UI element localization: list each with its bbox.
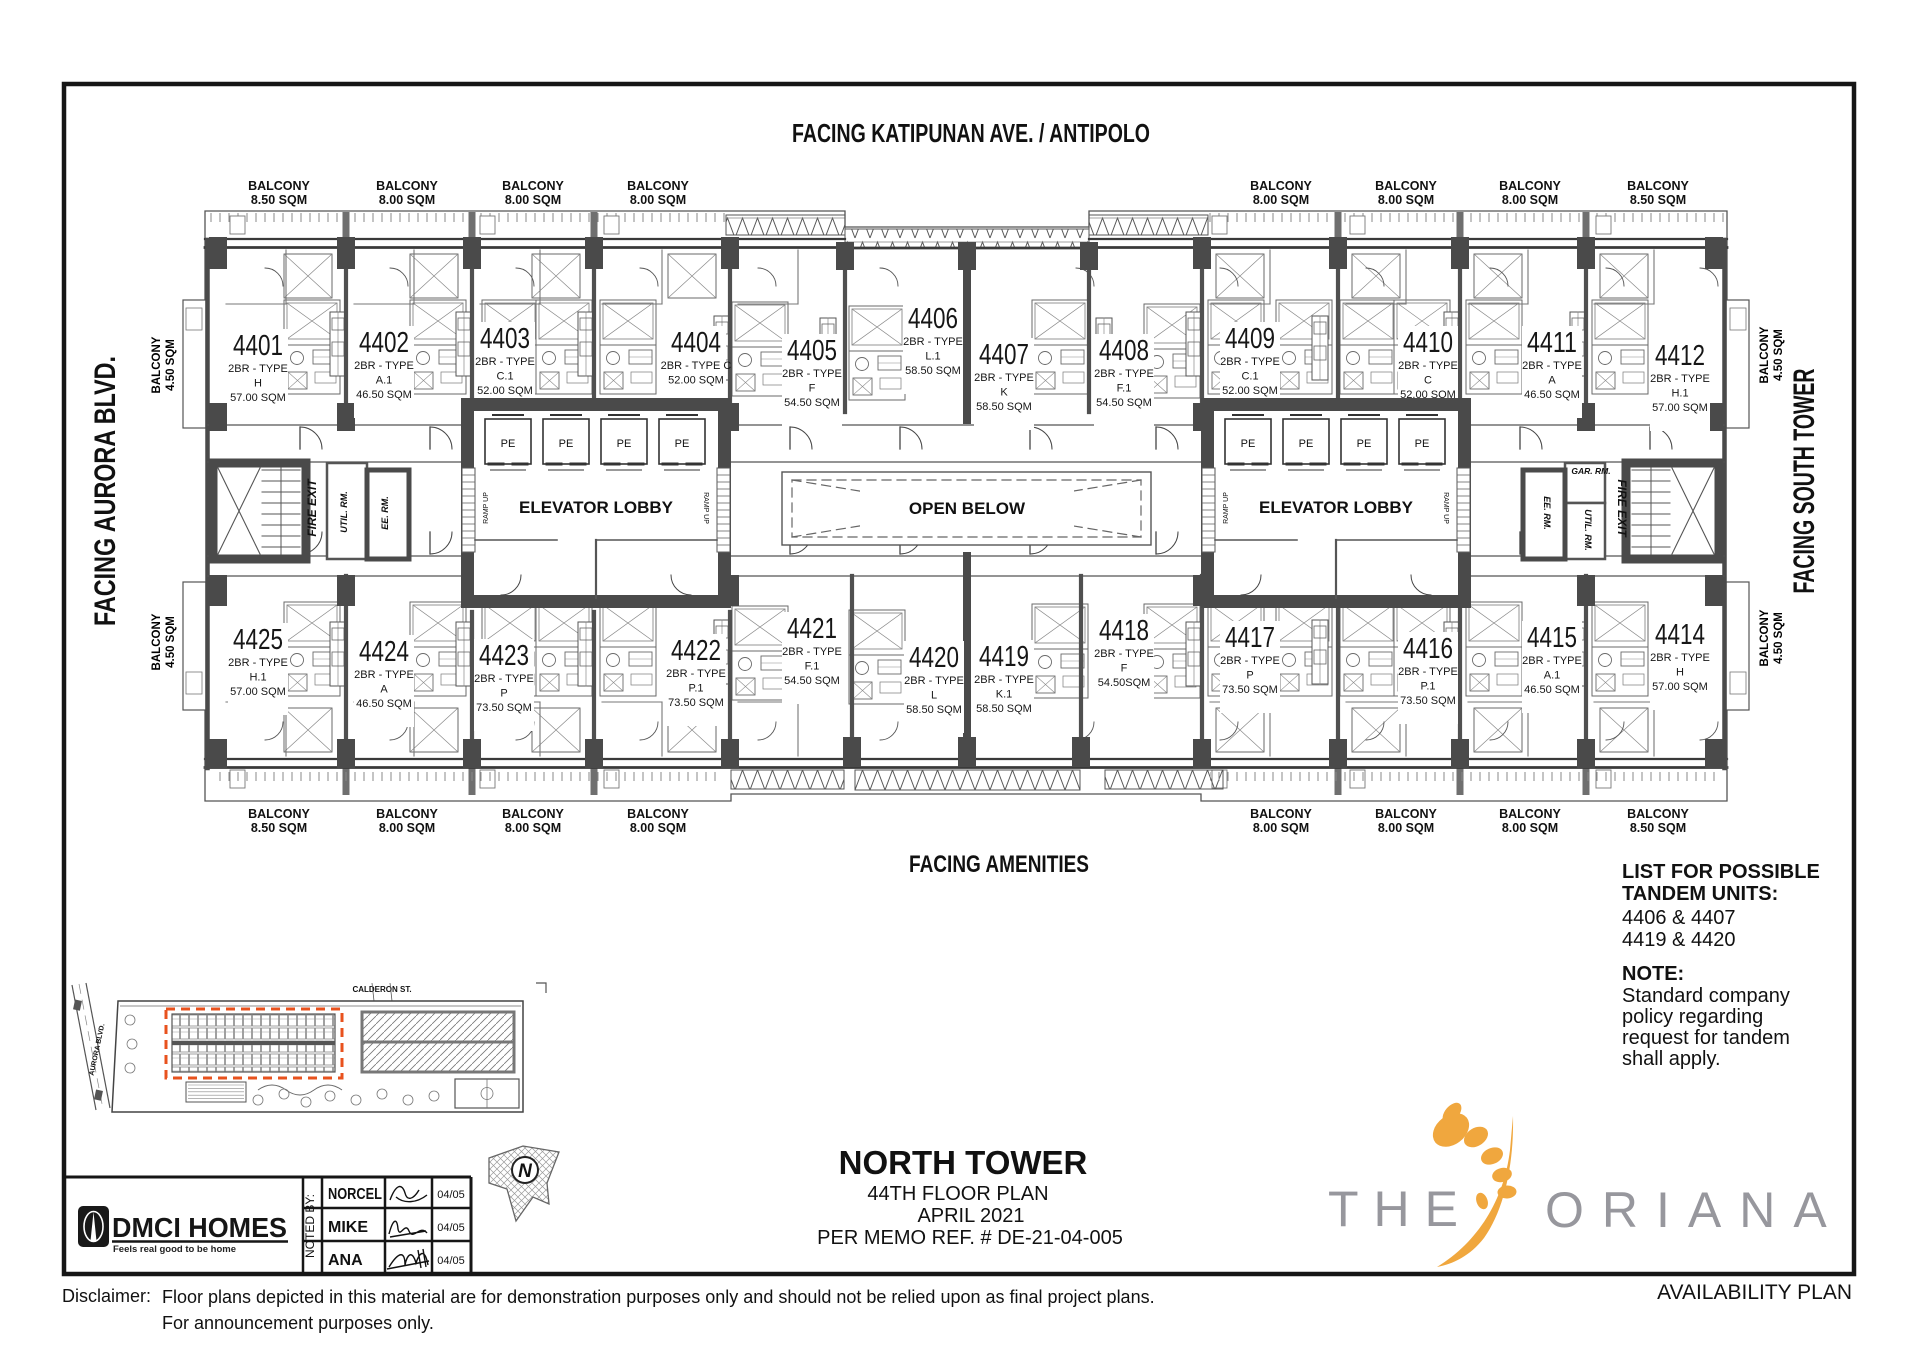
svg-text:P.1: P.1 — [688, 683, 703, 695]
svg-text:57.00 SQM: 57.00 SQM — [230, 392, 286, 404]
svg-text:8.00 SQM: 8.00 SQM — [1502, 193, 1558, 207]
svg-text:BALCONY: BALCONY — [1250, 179, 1312, 193]
svg-text:4422: 4422 — [671, 635, 721, 667]
svg-text:2BR - TYPE: 2BR - TYPE — [474, 673, 534, 685]
svg-text:K: K — [1000, 387, 1008, 399]
svg-text:FIRE EXIT: FIRE EXIT — [1615, 479, 1629, 538]
svg-text:46.50 SQM: 46.50 SQM — [1524, 389, 1580, 401]
svg-text:4410: 4410 — [1403, 327, 1453, 359]
svg-text:54.50 SQM: 54.50 SQM — [1096, 397, 1152, 409]
svg-text:H.1: H.1 — [1671, 388, 1688, 400]
svg-text:BALCONY: BALCONY — [1375, 807, 1437, 821]
svg-text:FACING SOUTH TOWER: FACING SOUTH TOWER — [1788, 368, 1821, 593]
svg-text:2BR - TYPE: 2BR - TYPE — [1522, 655, 1582, 667]
svg-text:NORCEL: NORCEL — [328, 1186, 382, 1203]
svg-text:BALCONY: BALCONY — [1759, 326, 1771, 383]
svg-text:8.00 SQM: 8.00 SQM — [630, 193, 686, 207]
svg-text:73.50 SQM: 73.50 SQM — [476, 702, 532, 714]
svg-text:EE. RM.: EE. RM. — [1542, 496, 1552, 530]
svg-text:RAMP UP: RAMP UP — [1223, 492, 1230, 524]
svg-text:shall apply.: shall apply. — [1622, 1048, 1721, 1070]
svg-text:BALCONY: BALCONY — [1250, 807, 1312, 821]
svg-text:8.00 SQM: 8.00 SQM — [1502, 821, 1558, 835]
svg-text:PE: PE — [559, 438, 574, 450]
svg-text:BALCONY: BALCONY — [502, 179, 564, 193]
svg-text:PE: PE — [617, 438, 632, 450]
svg-text:04/05: 04/05 — [437, 1255, 465, 1267]
svg-text:EE. RM.: EE. RM. — [380, 496, 390, 530]
svg-text:NOTED BY:: NOTED BY: — [303, 1194, 317, 1258]
svg-text:4424: 4424 — [359, 636, 409, 668]
svg-text:AVAILABILITY PLAN: AVAILABILITY PLAN — [1657, 1281, 1852, 1304]
svg-text:44TH FLOOR PLAN: 44TH FLOOR PLAN — [867, 1183, 1048, 1205]
svg-text:2BR - TYPE: 2BR - TYPE — [475, 356, 535, 368]
svg-text:PE: PE — [1299, 438, 1314, 450]
svg-text:4423: 4423 — [479, 640, 529, 672]
svg-text:73.50 SQM: 73.50 SQM — [1400, 695, 1456, 707]
svg-text:P: P — [1246, 670, 1253, 682]
svg-text:N: N — [518, 1161, 533, 1182]
svg-text:L: L — [931, 690, 937, 702]
svg-text:TANDEM UNITS:: TANDEM UNITS: — [1622, 883, 1778, 905]
svg-text:4419: 4419 — [979, 641, 1029, 673]
svg-text:4.50 SQM: 4.50 SQM — [1773, 612, 1785, 664]
svg-text:46.50 SQM: 46.50 SQM — [356, 389, 412, 401]
svg-text:NORTH TOWER: NORTH TOWER — [839, 1144, 1088, 1181]
svg-text:BALCONY: BALCONY — [1627, 807, 1689, 821]
svg-text:LIST FOR POSSIBLE: LIST FOR POSSIBLE — [1622, 861, 1820, 883]
svg-text:54.50 SQM: 54.50 SQM — [784, 397, 840, 409]
svg-text:BALCONY: BALCONY — [248, 807, 310, 821]
svg-text:4419 & 4420: 4419 & 4420 — [1622, 929, 1735, 951]
svg-text:THE: THE — [1328, 1181, 1473, 1237]
svg-text:policy regarding: policy regarding — [1622, 1006, 1763, 1028]
svg-text:C.1: C.1 — [1241, 371, 1258, 383]
svg-text:F.1: F.1 — [805, 661, 820, 673]
svg-text:4406 & 4407: 4406 & 4407 — [1622, 907, 1735, 929]
svg-text:L.1: L.1 — [925, 351, 940, 363]
svg-text:2BR - TYPE: 2BR - TYPE — [1220, 655, 1280, 667]
svg-text:BALCONY: BALCONY — [1499, 179, 1561, 193]
svg-text:57.00 SQM: 57.00 SQM — [1652, 402, 1708, 414]
svg-text:04/05: 04/05 — [437, 1222, 465, 1234]
svg-text:A.1: A.1 — [376, 375, 393, 387]
svg-text:F.1: F.1 — [1117, 383, 1132, 395]
svg-text:4417: 4417 — [1225, 622, 1275, 654]
svg-text:C: C — [1424, 375, 1432, 387]
svg-text:PER MEMO REF. # DE-21-04-005: PER MEMO REF. # DE-21-04-005 — [817, 1227, 1123, 1249]
svg-text:PE: PE — [501, 438, 516, 450]
svg-text:GAR. RM.: GAR. RM. — [1571, 466, 1610, 476]
svg-text:F: F — [809, 383, 816, 395]
svg-text:8.00 SQM: 8.00 SQM — [1253, 193, 1309, 207]
svg-text:4402: 4402 — [359, 327, 409, 359]
svg-text:8.50 SQM: 8.50 SQM — [251, 193, 307, 207]
svg-text:2BR - TYPE: 2BR - TYPE — [782, 368, 842, 380]
svg-text:2BR - TYPE C: 2BR - TYPE C — [661, 360, 732, 372]
svg-text:2BR - TYPE: 2BR - TYPE — [354, 360, 414, 372]
svg-text:4425: 4425 — [233, 624, 283, 656]
svg-text:8.00 SQM: 8.00 SQM — [379, 193, 435, 207]
svg-text:PE: PE — [1357, 438, 1372, 450]
svg-text:FACING AURORA BLVD.: FACING AURORA BLVD. — [89, 356, 122, 626]
svg-text:8.00 SQM: 8.00 SQM — [1378, 821, 1434, 835]
svg-text:RAMP UP: RAMP UP — [483, 492, 490, 524]
svg-text:Feels real good to be home: Feels real good to be home — [113, 1244, 236, 1255]
svg-text:BALCONY: BALCONY — [376, 807, 438, 821]
svg-text:4414: 4414 — [1655, 619, 1705, 651]
svg-text:Standard company: Standard company — [1622, 985, 1790, 1007]
svg-text:8.00 SQM: 8.00 SQM — [1378, 193, 1434, 207]
svg-text:ELEVATOR LOBBY: ELEVATOR LOBBY — [519, 498, 674, 517]
svg-text:OPEN BELOW: OPEN BELOW — [909, 499, 1026, 518]
svg-text:73.50 SQM: 73.50 SQM — [668, 697, 724, 709]
svg-text:P.1: P.1 — [1420, 681, 1435, 693]
svg-text:ELEVATOR LOBBY: ELEVATOR LOBBY — [1259, 498, 1414, 517]
svg-text:54.50 SQM: 54.50 SQM — [784, 675, 840, 687]
svg-text:4.50 SQM: 4.50 SQM — [165, 616, 177, 668]
svg-text:NOTE:: NOTE: — [1622, 963, 1684, 985]
svg-text:54.50SQM: 54.50SQM — [1098, 677, 1151, 689]
svg-text:73.50 SQM: 73.50 SQM — [1222, 684, 1278, 696]
svg-text:4408: 4408 — [1099, 335, 1149, 367]
svg-text:52.00 SQM: 52.00 SQM — [477, 385, 533, 397]
svg-text:4416: 4416 — [1403, 633, 1453, 665]
svg-text:46.50 SQM: 46.50 SQM — [356, 698, 412, 710]
svg-text:PE: PE — [1415, 438, 1430, 450]
svg-text:8.00 SQM: 8.00 SQM — [505, 193, 561, 207]
svg-text:2BR - TYPE: 2BR - TYPE — [1094, 368, 1154, 380]
svg-text:H: H — [1676, 667, 1684, 679]
svg-text:H.1: H.1 — [249, 672, 266, 684]
svg-text:2BR - TYPE: 2BR - TYPE — [1094, 648, 1154, 660]
svg-text:RAMP UP: RAMP UP — [1442, 492, 1449, 524]
svg-text:FACING KATIPUNAN AVE. / ANTIPO: FACING KATIPUNAN AVE. / ANTIPOLO — [792, 118, 1150, 148]
svg-text:A: A — [380, 684, 388, 696]
svg-text:4415: 4415 — [1527, 622, 1577, 654]
svg-text:F: F — [1121, 663, 1128, 675]
svg-text:FACING AMENITIES: FACING AMENITIES — [909, 851, 1089, 878]
svg-text:58.50 SQM: 58.50 SQM — [906, 704, 962, 716]
svg-text:8.00 SQM: 8.00 SQM — [630, 821, 686, 835]
svg-text:request for tandem: request for tandem — [1622, 1027, 1790, 1049]
svg-text:4403: 4403 — [480, 323, 530, 355]
svg-text:K.1: K.1 — [996, 689, 1013, 701]
svg-text:UTIL. RM.: UTIL. RM. — [1583, 509, 1593, 551]
svg-text:For announcement purposes only: For announcement purposes only. — [162, 1313, 434, 1333]
svg-text:4.50 SQM: 4.50 SQM — [1773, 329, 1785, 381]
svg-text:BALCONY: BALCONY — [502, 807, 564, 821]
svg-text:58.50 SQM: 58.50 SQM — [976, 401, 1032, 413]
svg-text:PE: PE — [675, 438, 690, 450]
svg-text:ORIANA: ORIANA — [1545, 1182, 1845, 1238]
svg-text:BALCONY: BALCONY — [248, 179, 310, 193]
svg-text:2BR - TYPE: 2BR - TYPE — [1220, 356, 1280, 368]
svg-text:2BR - TYPE: 2BR - TYPE — [1398, 360, 1458, 372]
svg-text:2BR - TYPE: 2BR - TYPE — [782, 646, 842, 658]
svg-text:A.1: A.1 — [1544, 670, 1561, 682]
svg-text:4406: 4406 — [908, 303, 958, 335]
svg-text:2BR - TYPE: 2BR - TYPE — [903, 336, 963, 348]
svg-text:04/05: 04/05 — [437, 1189, 465, 1201]
svg-text:2BR - TYPE: 2BR - TYPE — [904, 675, 964, 687]
svg-text:4405: 4405 — [787, 335, 837, 367]
svg-text:C.1: C.1 — [496, 371, 513, 383]
svg-text:MIKE: MIKE — [328, 1219, 368, 1236]
svg-text:8.50 SQM: 8.50 SQM — [1630, 821, 1686, 835]
svg-text:2BR - TYPE: 2BR - TYPE — [974, 674, 1034, 686]
svg-text:4421: 4421 — [787, 613, 837, 645]
svg-text:8.50 SQM: 8.50 SQM — [1630, 193, 1686, 207]
svg-text:4418: 4418 — [1099, 615, 1149, 647]
svg-text:8.00 SQM: 8.00 SQM — [1253, 821, 1309, 835]
svg-text:2BR - TYPE: 2BR - TYPE — [1522, 360, 1582, 372]
svg-text:4420: 4420 — [909, 642, 959, 674]
svg-text:52.00 SQM: 52.00 SQM — [668, 375, 724, 387]
svg-text:2BR - TYPE: 2BR - TYPE — [1398, 666, 1458, 678]
svg-text:BALCONY: BALCONY — [627, 179, 689, 193]
svg-text:BALCONY: BALCONY — [376, 179, 438, 193]
svg-text:BALCONY: BALCONY — [1759, 609, 1771, 666]
svg-text:BALCONY: BALCONY — [151, 336, 163, 393]
svg-text:4409: 4409 — [1225, 323, 1275, 355]
svg-text:BALCONY: BALCONY — [151, 613, 163, 670]
svg-text:8.50 SQM: 8.50 SQM — [251, 821, 307, 835]
svg-text:8.00 SQM: 8.00 SQM — [379, 821, 435, 835]
svg-text:2BR - TYPE: 2BR - TYPE — [1650, 373, 1710, 385]
svg-text:2BR - TYPE: 2BR - TYPE — [974, 372, 1034, 384]
svg-text:RAMP UP: RAMP UP — [702, 492, 709, 524]
svg-text:4401: 4401 — [233, 330, 283, 362]
svg-text:BALCONY: BALCONY — [1499, 807, 1561, 821]
svg-text:4411: 4411 — [1527, 327, 1577, 359]
svg-text:ANA: ANA — [328, 1252, 363, 1269]
svg-text:58.50 SQM: 58.50 SQM — [905, 365, 961, 377]
svg-text:2BR - TYPE: 2BR - TYPE — [228, 363, 288, 375]
svg-text:57.00 SQM: 57.00 SQM — [1652, 681, 1708, 693]
svg-text:UTIL. RM.: UTIL. RM. — [339, 491, 349, 533]
svg-text:DMCI HOMES: DMCI HOMES — [112, 1212, 287, 1243]
svg-text:2BR - TYPE: 2BR - TYPE — [228, 657, 288, 669]
svg-text:2BR - TYPE: 2BR - TYPE — [354, 669, 414, 681]
svg-text:2BR - TYPE: 2BR - TYPE — [1650, 652, 1710, 664]
svg-text:52.00 SQM: 52.00 SQM — [1222, 385, 1278, 397]
svg-text:4404: 4404 — [671, 327, 721, 359]
svg-text:4412: 4412 — [1655, 340, 1705, 372]
svg-text:BALCONY: BALCONY — [1375, 179, 1437, 193]
svg-text:Floor plans depicted in this m: Floor plans depicted in this material ar… — [162, 1287, 1155, 1307]
svg-text:A: A — [1548, 375, 1556, 387]
svg-text:58.50 SQM: 58.50 SQM — [976, 703, 1032, 715]
svg-text:8.00 SQM: 8.00 SQM — [505, 821, 561, 835]
svg-text:P: P — [500, 688, 507, 700]
svg-text:APRIL 2021: APRIL 2021 — [917, 1205, 1024, 1227]
svg-text:PE: PE — [1241, 438, 1256, 450]
svg-text:BALCONY: BALCONY — [627, 807, 689, 821]
svg-text:4.50 SQM: 4.50 SQM — [165, 339, 177, 391]
svg-text:2BR - TYPE: 2BR - TYPE — [666, 668, 726, 680]
svg-text:FIRE EXIT: FIRE EXIT — [305, 478, 319, 537]
svg-text:BALCONY: BALCONY — [1627, 179, 1689, 193]
svg-text:CALDERON ST.: CALDERON ST. — [352, 985, 411, 994]
svg-text:46.50 SQM: 46.50 SQM — [1524, 684, 1580, 696]
svg-text:57.00 SQM: 57.00 SQM — [230, 686, 286, 698]
svg-text:Disclaimer:: Disclaimer: — [62, 1286, 151, 1306]
svg-text:H: H — [254, 378, 262, 390]
svg-text:4407: 4407 — [979, 339, 1029, 371]
